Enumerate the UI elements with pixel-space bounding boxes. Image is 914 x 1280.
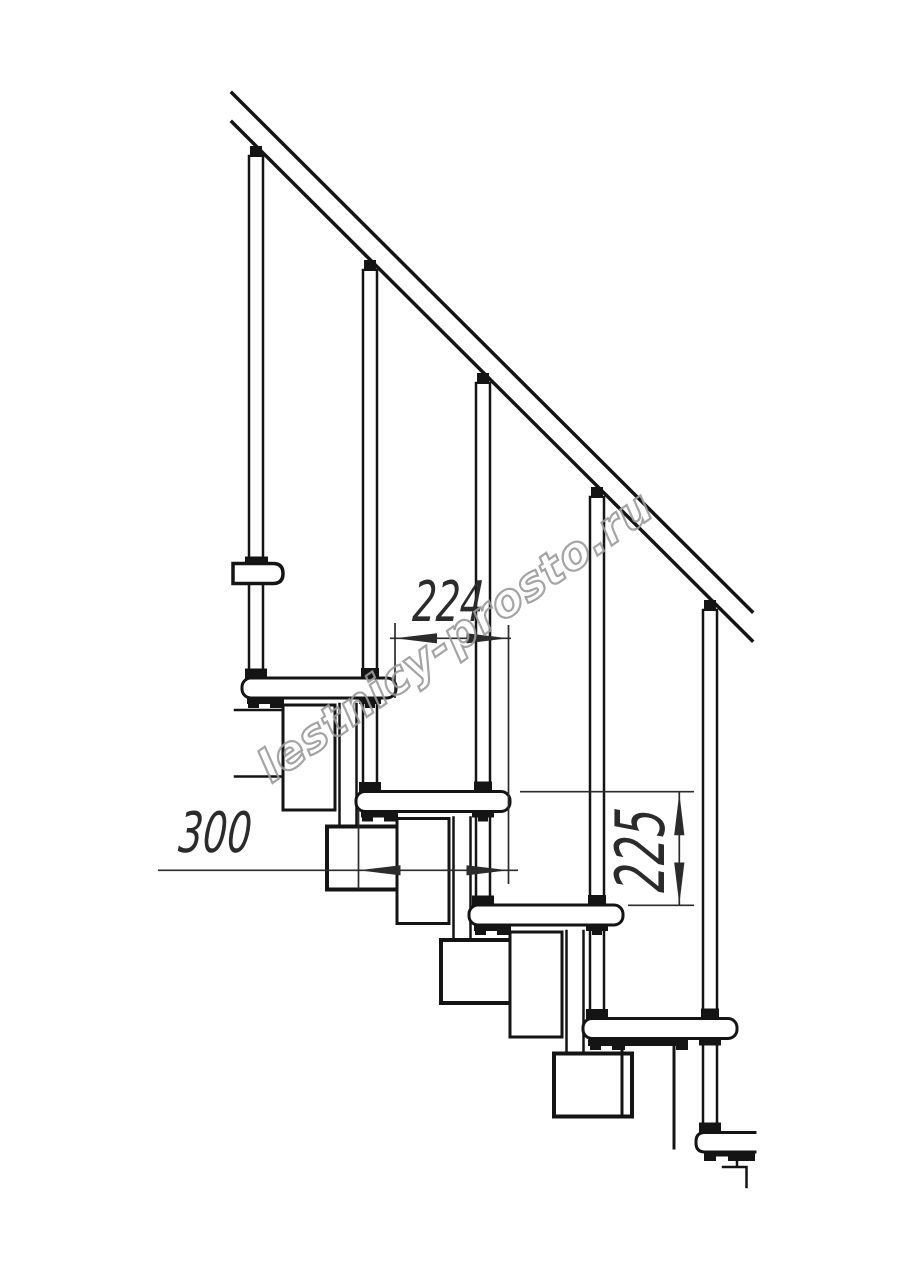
module-box-2 bbox=[327, 827, 405, 890]
watermark-text: lestnicy-prosto.ru bbox=[247, 480, 663, 793]
tread-2 bbox=[356, 792, 510, 812]
rail-bracket bbox=[233, 557, 283, 584]
baluster-2-cap bbox=[364, 260, 376, 271]
dimension-225-label: 225 bbox=[602, 806, 680, 894]
baluster-5 bbox=[703, 610, 717, 1123]
module-box-4 bbox=[554, 1054, 632, 1117]
baluster-3-cap bbox=[477, 373, 489, 384]
handrail bbox=[232, 93, 752, 641]
module-box-3 bbox=[441, 940, 519, 1003]
tread-4 bbox=[583, 1019, 737, 1039]
staircase-drawing: 224 300 225 lestnicy-prosto.ru bbox=[0, 0, 914, 1280]
module-column-3 bbox=[510, 932, 562, 1037]
dimension-300-label: 300 bbox=[177, 801, 254, 866]
baluster-5-cap bbox=[704, 600, 716, 611]
tread-5 bbox=[696, 1133, 755, 1153]
baluster-1-cap bbox=[250, 146, 262, 157]
drawing-canvas: 224 300 225 lestnicy-prosto.ru bbox=[0, 0, 914, 1280]
tread-3 bbox=[469, 905, 623, 925]
baluster-1 bbox=[249, 156, 263, 669]
baluster-4-cap bbox=[591, 487, 603, 498]
tail-cut bbox=[723, 1161, 747, 1187]
dimension-225: 225 bbox=[520, 792, 694, 906]
